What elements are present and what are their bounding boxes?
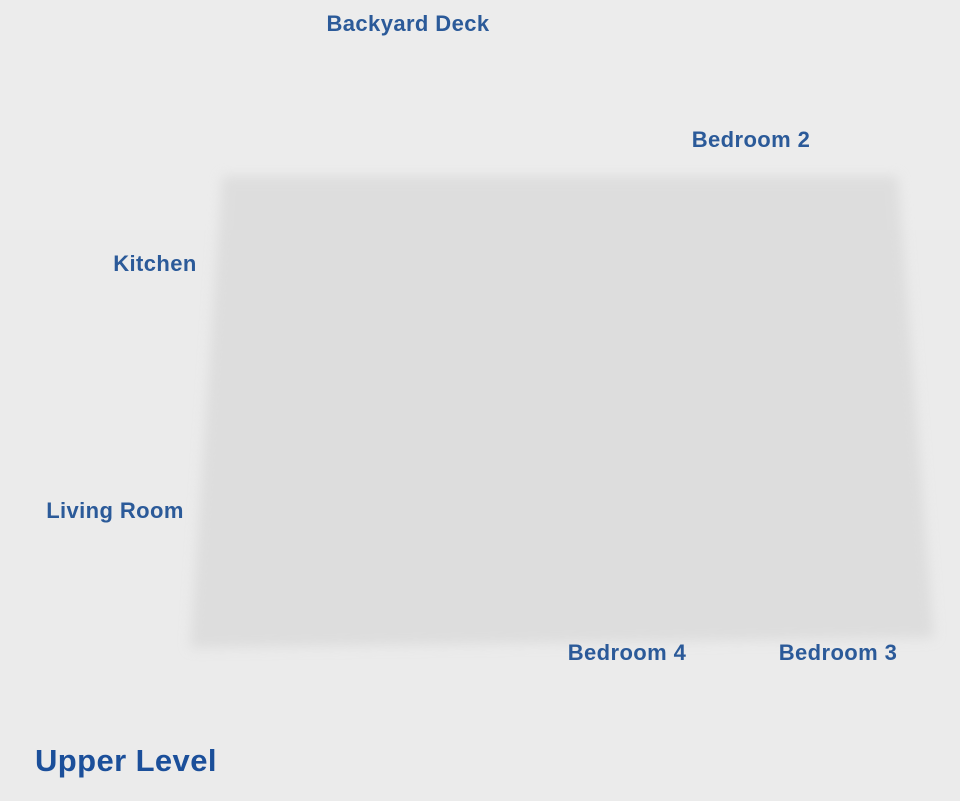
svg-text:Kitchen: Kitchen xyxy=(113,251,196,276)
svg-text:Backyard Deck: Backyard Deck xyxy=(327,11,490,36)
svg-text:Upper Level: Upper Level xyxy=(35,743,217,778)
svg-text:Bedroom 4: Bedroom 4 xyxy=(568,640,687,665)
svg-text:Bedroom 2: Bedroom 2 xyxy=(692,127,811,152)
svg-text:Living Room: Living Room xyxy=(46,498,184,523)
svg-text:Bedroom 3: Bedroom 3 xyxy=(779,640,898,665)
